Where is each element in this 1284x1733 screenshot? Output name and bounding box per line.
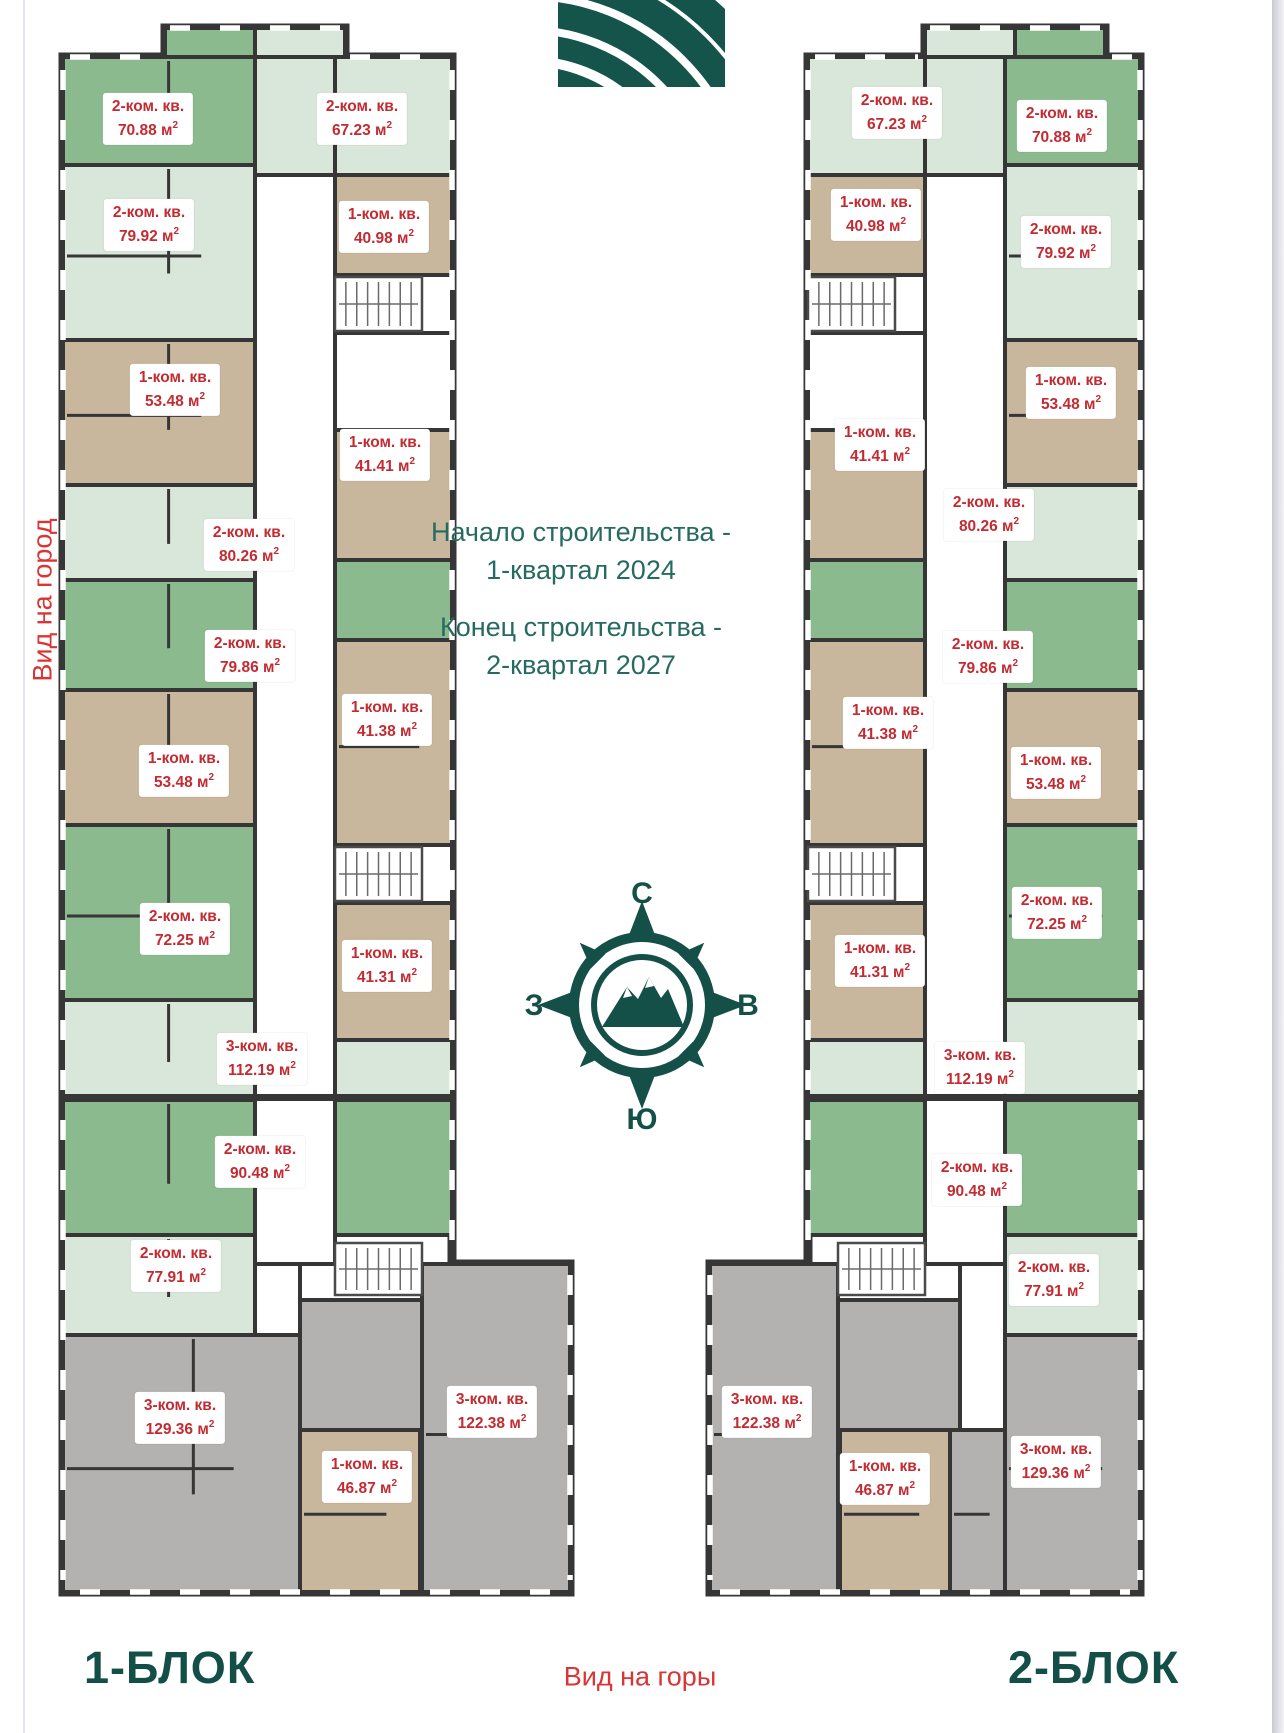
apartment-label: 3-ком. кв.112.19 м2 [217, 1033, 307, 1085]
apartment-label: 2-ком. кв.80.26 м2 [204, 519, 294, 571]
apartment-rooms-text: 2-ком. кв. [113, 203, 185, 223]
block-1-title: 1-БЛОК [84, 1642, 255, 1694]
apartment-label: 2-ком. кв.79.92 м2 [1021, 216, 1111, 268]
apartment-label: 2-ком. кв.72.25 м2 [1012, 887, 1102, 939]
apartment-rooms-text: 3-ком. кв. [944, 1046, 1016, 1066]
compass-east-label: В [737, 989, 759, 1022]
apartment-area-text: 67.23 м2 [861, 111, 933, 135]
apartment-label: 2-ком. кв.79.86 м2 [943, 631, 1033, 683]
apartment-label: 1-ком. кв.40.98 м2 [339, 201, 429, 253]
apartment-area-text: 53.48 м2 [148, 769, 220, 793]
apartment-area-text: 80.26 м2 [213, 543, 285, 567]
apartment-rooms-text: 1-ком. кв. [349, 433, 421, 453]
apartment-area-text: 41.31 м2 [844, 959, 916, 983]
apartment-area-text: 53.48 м2 [1020, 771, 1092, 795]
apartment-label: 2-ком. кв.67.23 м2 [852, 87, 942, 139]
apartment-area-text: 129.36 м2 [1020, 1460, 1092, 1484]
apartment-rooms-text: 2-ком. кв. [112, 97, 184, 117]
apartment-label: 2-ком. кв.79.92 м2 [104, 199, 194, 251]
apartment-area-text: 41.41 м2 [349, 453, 421, 477]
view-mountains-label: Вид на горы [564, 1662, 716, 1693]
developer-logo [558, 0, 725, 87]
apartment-rooms-text: 1-ком. кв. [331, 1455, 403, 1475]
apartment-rooms-text: 1-ком. кв. [1035, 371, 1107, 391]
apartment-label: 2-ком. кв.80.26 м2 [944, 489, 1034, 541]
apartment-label: 1-ком. кв.41.41 м2 [340, 429, 430, 481]
apartment-area-text: 90.48 м2 [224, 1160, 296, 1184]
apartment-area-text: 122.38 м2 [731, 1410, 803, 1434]
apartment-area-text: 129.36 м2 [144, 1416, 216, 1440]
apartment-area-text: 40.98 м2 [840, 213, 912, 237]
apartment-label: 1-ком. кв.53.48 м2 [1026, 367, 1116, 419]
apartment-rooms-text: 1-ком. кв. [351, 698, 423, 718]
apartment-rooms-text: 3-ком. кв. [456, 1390, 528, 1410]
apartment-label: 3-ком. кв.112.19 м2 [935, 1042, 1025, 1094]
apartment-label: 1-ком. кв.40.98 м2 [831, 189, 921, 241]
apartment-rooms-text: 1-ком. кв. [348, 205, 420, 225]
apartment-label: 3-ком. кв.129.36 м2 [135, 1392, 225, 1444]
apartment-area-text: 72.25 м2 [1021, 911, 1093, 935]
apartment-area-text: 46.87 м2 [849, 1477, 921, 1501]
apartment-rooms-text: 1-ком. кв. [148, 749, 220, 769]
apartment-area-text: 53.48 м2 [1035, 391, 1107, 415]
note-line: Конец строительства - [440, 608, 722, 646]
apartment-area-text: 46.87 м2 [331, 1475, 403, 1499]
apartment-label: 3-ком. кв.129.36 м2 [1011, 1436, 1101, 1488]
apartment-area-text: 77.91 м2 [1018, 1278, 1090, 1302]
apartment-label: 1-ком. кв.53.48 м2 [130, 364, 220, 416]
apartment-rooms-text: 1-ком. кв. [351, 944, 423, 964]
apartment-rooms-text: 2-ком. кв. [1026, 104, 1098, 124]
apartment-label: 2-ком. кв.70.88 м2 [103, 93, 193, 145]
compass-south-label: Ю [627, 1103, 658, 1136]
apartment-area-text: 67.23 м2 [326, 117, 398, 141]
apartment-rooms-text: 2-ком. кв. [149, 907, 221, 927]
apartment-area-text: 122.38 м2 [456, 1410, 528, 1434]
apartment-area-text: 90.48 м2 [941, 1178, 1013, 1202]
construction-start-note: Начало строительства - 1-квартал 2024 [431, 513, 731, 589]
apartment-rooms-text: 2-ком. кв. [941, 1158, 1013, 1178]
apartment-area-text: 41.38 м2 [852, 721, 924, 745]
apartment-label: 1-ком. кв.41.38 м2 [843, 697, 933, 749]
apartment-area-text: 70.88 м2 [112, 117, 184, 141]
apartment-rooms-text: 2-ком. кв. [213, 523, 285, 543]
apartment-area-text: 112.19 м2 [226, 1057, 298, 1081]
apartment-area-text: 41.31 м2 [351, 964, 423, 988]
apartment-area-text: 80.26 м2 [953, 513, 1025, 537]
apartment-rooms-text: 2-ком. кв. [861, 91, 933, 111]
construction-end-note: Конец строительства - 2-квартал 2027 [440, 608, 722, 684]
apartment-area-text: 70.88 м2 [1026, 124, 1098, 148]
apartment-area-text: 41.41 м2 [844, 443, 916, 467]
apartment-area-text: 79.92 м2 [1030, 240, 1102, 264]
apartment-rooms-text: 2-ком. кв. [214, 634, 286, 654]
apartment-rooms-text: 1-ком. кв. [844, 939, 916, 959]
apartment-label: 1-ком. кв.41.41 м2 [835, 419, 925, 471]
apartment-rooms-text: 2-ком. кв. [1018, 1258, 1090, 1278]
floorplan-page: Начало строительства - 1-квартал 2024 Ко… [0, 0, 1284, 1733]
apartment-rooms-text: 2-ком. кв. [224, 1140, 296, 1160]
apartment-rooms-text: 3-ком. кв. [1020, 1440, 1092, 1460]
apartment-area-text: 77.91 м2 [140, 1264, 212, 1288]
apartment-area-text: 79.86 м2 [214, 654, 286, 678]
apartment-rooms-text: 2-ком. кв. [1030, 220, 1102, 240]
apartment-label: 1-ком. кв.46.87 м2 [840, 1453, 930, 1505]
apartment-rooms-text: 3-ком. кв. [731, 1390, 803, 1410]
logo-arcs [558, 0, 725, 87]
apartment-label: 2-ком. кв.77.91 м2 [1009, 1254, 1099, 1306]
apartment-area-text: 79.92 м2 [113, 223, 185, 247]
apartment-rooms-text: 2-ком. кв. [952, 635, 1024, 655]
apartment-area-text: 40.98 м2 [348, 225, 420, 249]
block-2-title: 2-БЛОК [1008, 1642, 1179, 1694]
view-city-label: Вид на город [28, 518, 59, 681]
apartment-rooms-text: 1-ком. кв. [849, 1457, 921, 1477]
apartment-label: 3-ком. кв.122.38 м2 [722, 1386, 812, 1438]
apartment-rooms-text: 1-ком. кв. [852, 701, 924, 721]
apartment-label: 1-ком. кв.53.48 м2 [139, 745, 229, 797]
apartment-rooms-text: 3-ком. кв. [226, 1037, 298, 1057]
apartment-label: 2-ком. кв.67.23 м2 [317, 93, 407, 145]
apartment-area-text: 41.38 м2 [351, 718, 423, 742]
compass-west-label: З [525, 989, 544, 1022]
apartment-rooms-text: 2-ком. кв. [140, 1244, 212, 1264]
apartment-area-text: 112.19 м2 [944, 1066, 1016, 1090]
apartment-area-text: 53.48 м2 [139, 388, 211, 412]
apartment-area-text: 79.86 м2 [952, 655, 1024, 679]
apartment-rooms-text: 1-ком. кв. [840, 193, 912, 213]
apartment-rooms-text: 2-ком. кв. [326, 97, 398, 117]
apartment-label: 2-ком. кв.77.91 м2 [131, 1240, 221, 1292]
apartment-label: 1-ком. кв.53.48 м2 [1011, 747, 1101, 799]
apartment-label: 3-ком. кв.122.38 м2 [447, 1386, 537, 1438]
apartment-label: 1-ком. кв.41.31 м2 [835, 935, 925, 987]
apartment-rooms-text: 1-ком. кв. [1020, 751, 1092, 771]
apartment-label: 1-ком. кв.41.38 м2 [342, 694, 432, 746]
apartment-rooms-text: 2-ком. кв. [953, 493, 1025, 513]
apartment-label: 2-ком. кв.79.86 м2 [205, 630, 295, 682]
apartment-label: 1-ком. кв.46.87 м2 [322, 1451, 412, 1503]
apartment-area-text: 72.25 м2 [149, 927, 221, 951]
apartment-label: 2-ком. кв.90.48 м2 [932, 1154, 1022, 1206]
apartment-rooms-text: 3-ком. кв. [144, 1396, 216, 1416]
compass-rose: С Ю З В [507, 870, 777, 1140]
apartment-label: 2-ком. кв.72.25 м2 [140, 903, 230, 955]
apartment-label: 2-ком. кв.70.88 м2 [1017, 100, 1107, 152]
apartment-label: 2-ком. кв.90.48 м2 [215, 1136, 305, 1188]
apartment-rooms-text: 1-ком. кв. [844, 423, 916, 443]
apartment-rooms-text: 2-ком. кв. [1021, 891, 1093, 911]
apartment-rooms-text: 1-ком. кв. [139, 368, 211, 388]
compass-north-label: С [631, 877, 653, 910]
note-line: 1-квартал 2024 [431, 551, 731, 589]
note-line: 2-квартал 2027 [440, 646, 722, 684]
apartment-label: 1-ком. кв.41.31 м2 [342, 940, 432, 992]
note-line: Начало строительства - [431, 513, 731, 551]
